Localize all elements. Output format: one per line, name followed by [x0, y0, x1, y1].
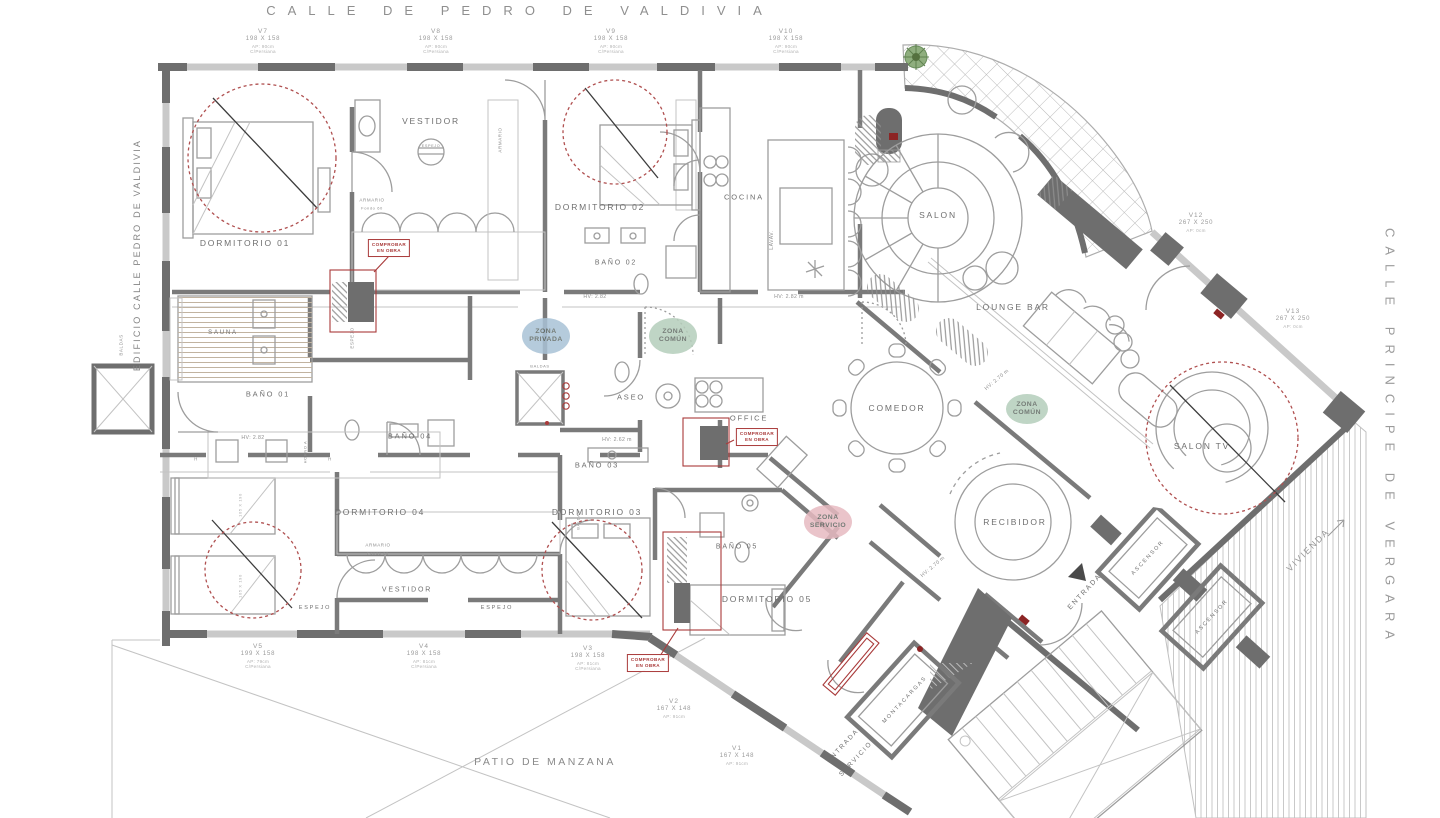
bath05-fixtures — [700, 495, 758, 562]
bed-dorm05 — [690, 585, 785, 635]
bed-dorm01 — [183, 98, 330, 238]
lounge-bar-furniture — [1023, 277, 1139, 384]
kitchen — [700, 108, 861, 296]
patio-boundary — [112, 638, 705, 818]
entrance-arrow-icon — [1068, 563, 1086, 581]
service-lift — [847, 643, 959, 757]
terrace — [876, 44, 1152, 269]
dining-table — [833, 344, 961, 472]
bath02-fixtures — [585, 228, 696, 294]
bed-dorm02 — [585, 88, 700, 210]
floor-plan-canvas: CALLE DE PEDRO DE VALDIVIA EDIFICIO CALL… — [0, 0, 1440, 818]
sauna-area — [170, 296, 312, 382]
beds-dorm04 — [171, 478, 292, 614]
recibidor-rug — [950, 453, 1071, 580]
service-radiator — [823, 633, 879, 695]
street-name-top: CALLE DE PEDRO DE VALDIVIA — [266, 3, 774, 18]
aseo-fixtures — [615, 362, 680, 408]
floor-plan-drawing — [0, 0, 1440, 818]
patio-label: PATIO DE MANZANA — [474, 756, 616, 768]
street-name-left: EDIFICIO CALLE PEDRO DE VALDIVIA — [132, 139, 142, 371]
street-name-right: CALLE PRINCIPE DE VERGARA — [1383, 228, 1398, 648]
salon-tv-sofa — [1113, 367, 1285, 520]
